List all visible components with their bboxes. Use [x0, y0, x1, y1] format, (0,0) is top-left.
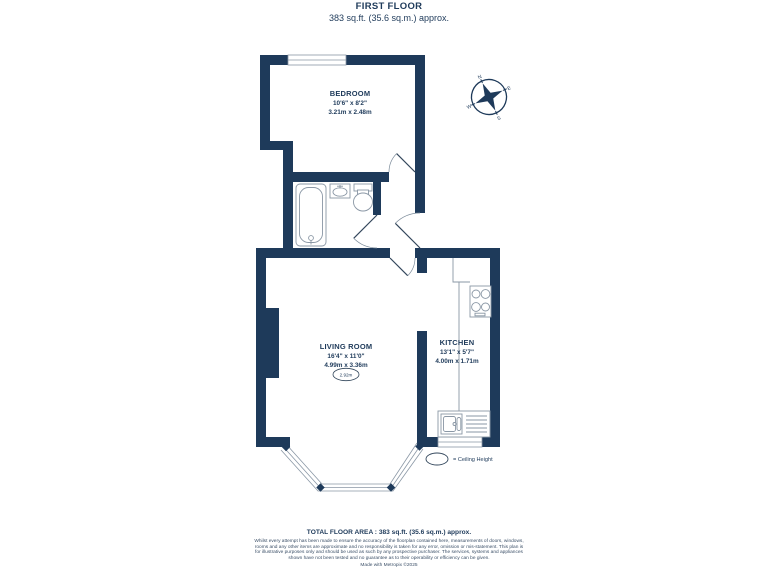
wall-bedroom-left	[260, 55, 270, 150]
kitchen-counter	[453, 258, 470, 411]
entry-door	[395, 213, 420, 248]
compass-star	[469, 77, 509, 117]
bedroom-door	[389, 154, 415, 172]
wall-divider-bottom	[417, 331, 427, 447]
bedroom-metric: 3.21m x 2.48m	[328, 109, 372, 116]
floorplan-drawing: N E S W BEDROOM 10'6" x 8'2" 3.21m x 2.4…	[0, 0, 768, 576]
living-room-door	[390, 258, 415, 276]
wall-bathroom-divider	[373, 182, 381, 215]
compass-e: E	[507, 85, 513, 92]
wall-right-upper	[415, 55, 425, 213]
bedroom-imperial: 10'6" x 8'2"	[333, 100, 367, 107]
living-room-label: LIVING ROOM 16'4" x 11'0" 4.99m x 3.36m …	[320, 342, 373, 381]
bedroom-window	[288, 55, 346, 65]
wall-bedroom-bottom	[293, 172, 389, 182]
toilet	[354, 184, 373, 211]
bedroom-label: BEDROOM 10'6" x 8'2" 3.21m x 2.48m	[328, 89, 372, 116]
kitchen-window	[438, 437, 482, 447]
kitchen-label: KITCHEN 13'1" x 5'7" 4.00m x 1.71m	[435, 338, 479, 365]
wall-divider-top	[417, 248, 427, 273]
living-room-name: LIVING ROOM	[320, 342, 373, 351]
bathtub	[296, 184, 326, 246]
bathroom-door	[354, 215, 377, 248]
wall-living-top	[256, 248, 390, 258]
credit-text: Made with Metropix ©2025	[0, 563, 768, 568]
hob	[470, 286, 491, 317]
bedroom-name: BEDROOM	[330, 89, 371, 98]
compass-icon: N E S W	[457, 65, 523, 132]
kitchen-name: KITCHEN	[440, 338, 475, 347]
ceiling-height-value: 2.92m	[340, 373, 353, 378]
compass-s: S	[496, 115, 502, 122]
wall-kitchen-top	[415, 248, 500, 258]
wall-kitchen-right	[490, 248, 500, 447]
bathroom-sink	[330, 184, 350, 198]
ceiling-height-legend: = Ceiling Height	[426, 453, 493, 465]
compass-n: N	[477, 74, 483, 81]
disclaimer-text: Whilst every attempt has been made to en…	[253, 539, 525, 562]
chimney-breast	[266, 308, 279, 378]
bay-window	[281, 442, 424, 491]
ceiling-height-legend-label: = Ceiling Height	[453, 457, 493, 463]
living-room-imperial: 16'4" x 11'0"	[327, 353, 364, 360]
ceiling-height-badge: 2.92m	[333, 368, 359, 380]
kitchen-fixtures	[438, 258, 491, 437]
total-floor-area: TOTAL FLOOR AREA : 383 sq.ft. (35.6 sq.m…	[0, 529, 768, 536]
kitchen-metric: 4.00m x 1.71m	[435, 358, 479, 365]
walls	[256, 55, 500, 447]
kitchen-sink	[438, 411, 490, 437]
footer: TOTAL FLOOR AREA : 383 sq.ft. (35.6 sq.m…	[0, 529, 768, 568]
wall-kitchen-bottom-right	[482, 437, 500, 447]
bathroom-fixtures	[296, 184, 373, 246]
wall-living-left	[256, 248, 266, 447]
kitchen-imperial: 13'1" x 5'7"	[440, 349, 474, 356]
wall-bathroom-left	[283, 141, 293, 258]
